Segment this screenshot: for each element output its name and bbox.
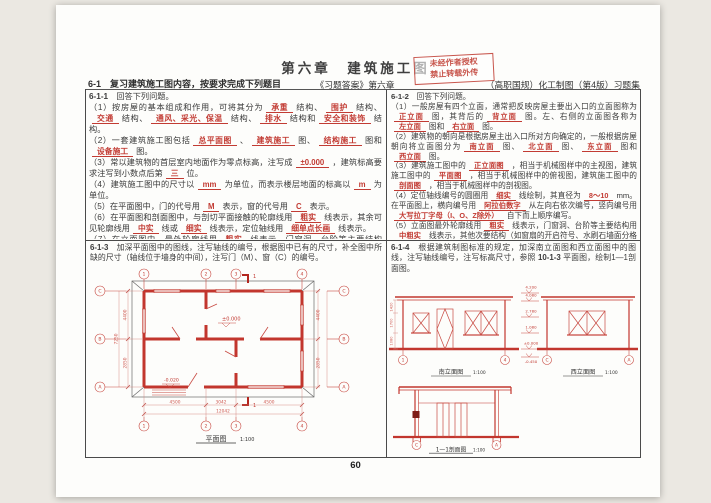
section-scale: 1:100	[473, 447, 485, 452]
question-paragraph: （2）一套建筑施工图包括总平面图、建筑施工图、结构施工图和设备施工图。	[89, 136, 382, 158]
axis-label: A	[342, 384, 346, 390]
axis-label: 1	[143, 423, 146, 429]
section-mark-bottom: 1	[253, 403, 256, 409]
plan-level-zero: ±0.000	[222, 316, 241, 322]
west-elevation-scale: 1:100	[605, 370, 618, 376]
plan-dim: 4400	[316, 309, 322, 320]
question-paragraph: （4）定位轴线编号的圆圈用细实线绘制，其直径为8～10mm。在平面图上，横向编号…	[391, 191, 637, 221]
axis-label: 2	[205, 423, 208, 429]
level-mark: ±0.000	[523, 340, 538, 345]
frame-left-border	[85, 89, 86, 240]
plan-dim: 4400	[123, 309, 129, 320]
floor-plan-drawing: 1 1 ±0.000 -0.020	[88, 265, 384, 447]
axis-label: 1	[143, 271, 146, 277]
axis-label: C	[545, 357, 548, 363]
section-title: 1—1剖面图	[435, 445, 466, 453]
page-number: 60	[0, 460, 711, 471]
question-paragraph: （1）按房屋的基本组成和作用，可将其分为承重结构、围护结构、交通结构、通风、采光…	[89, 103, 382, 136]
question-paragraph: （6）在平面图和剖面图中，与剖切平面接触的轮廓线用粗实线表示，其余可见轮廓线用中…	[89, 213, 382, 235]
level-mark: 4.080	[525, 292, 537, 297]
axis-label: C	[342, 288, 345, 294]
question-paragraph: （5）立面图最外轮廓线用粗实线表示，门窗洞、台阶等主要结构用中粗实线表示，其他次…	[391, 221, 637, 239]
south-elevation-scale: 1:100	[473, 370, 486, 376]
height-dim: 1080	[389, 336, 393, 346]
question-paragraph: （5）在平面图中，门的代号用M表示，窗的代号用C表示。	[89, 202, 382, 213]
axis-label: 2	[205, 271, 208, 277]
question-paragraph: （7）在立面图中，最外轮廓线用粗实线表示，门窗洞、台阶等主要结构中粗实线表示，其…	[89, 235, 382, 239]
axis-label: 3	[235, 271, 238, 277]
question-paragraph: （1）一般房屋有四个立面，通常把反映房屋主要出入口的立面图称为正立面图，其背后的…	[391, 102, 637, 132]
question-paragraph: （3）常以建筑物的首层室内地面作为零点标高，注写成±0.000，建筑标高要求注写…	[89, 158, 382, 180]
question-6-1-1: 6-1-1 回答下列问题。 （1）按房屋的基本组成和作用，可将其分为承重结构、围…	[89, 92, 382, 239]
axis-label: 3	[235, 423, 238, 429]
plan-level-porch: -0.020	[164, 377, 179, 383]
scanned-textbook-page: 第六章 建筑施工图 未经作者授权 禁止转载外传 6-1 复习建筑施工图内容，按要…	[0, 0, 711, 503]
plan-dim: 4500	[264, 399, 275, 405]
axis-label: B	[342, 336, 345, 342]
plan-dim: 2850	[316, 357, 322, 368]
axis-label: A	[627, 357, 630, 363]
frame-right-border	[640, 89, 641, 240]
exercise-box-6-1-4: 6-1-4 根据建筑制图标准的规定，加深南立面图和西立面图中的图线，注写轴线编号…	[386, 240, 641, 458]
axis-label: A	[98, 384, 102, 390]
level-mark: 1.080	[525, 324, 537, 329]
level-mark: -0.450	[524, 359, 537, 364]
question-paragraph: （2）建筑物的朝向是根据房屋主出入口所对方向确定的，一般根据房屋朝向将立面图分为…	[391, 132, 637, 162]
plan-dim: 2850	[123, 357, 129, 368]
elevation-section-drawing: 1420 1700 1080 1 4 南立面图 1:100	[389, 275, 639, 455]
task-6-1-4: 6-1-4 根据建筑制图标准的规定，加深南立面图和西立面图中的图线，注写轴线编号…	[387, 241, 640, 274]
chapter-title: 第六章 建筑施工图	[0, 57, 711, 77]
axis-label: A	[494, 442, 497, 448]
question-intro: 6-1-1 回答下列问题。	[89, 92, 382, 103]
height-dim: 1700	[389, 318, 393, 328]
plan-scale-label: 1:100	[240, 437, 254, 443]
question-paragraph: （3）建筑施工图中的正立面图，相当于机械图样中的主视图，建筑施工图中的平面图，相…	[391, 161, 637, 191]
exercise-box-6-1-3: 6-1-3 加深平面图中的图线，注写轴线的编号，根据图中已有的尺寸，补全图中所缺…	[85, 240, 387, 458]
plan-dim-total: 12042	[216, 408, 230, 414]
axis-label: C	[414, 442, 417, 448]
axis-label: C	[98, 288, 101, 294]
level-mark: 2.780	[525, 308, 537, 313]
section-mark-top: 1	[253, 274, 256, 280]
task-6-1-3: 6-1-3 加深平面图中的图线，注写轴线的编号，根据图中已有的尺寸，补全图中所缺…	[86, 241, 386, 264]
axis-label: B	[98, 336, 101, 342]
beam-section	[412, 411, 419, 418]
south-elevation-title: 南立面图	[438, 368, 463, 376]
west-elevation-title: 西立面图	[570, 368, 595, 376]
header-rule	[85, 89, 641, 90]
axis-label: 1	[401, 357, 404, 363]
axis-label: 4	[503, 357, 506, 363]
question-6-1-2: 6-1-2 回答下列问题。 （1）一般房屋有四个立面，通常把反映房屋主要出入口的…	[391, 92, 637, 239]
plan-dim: 3042	[216, 399, 227, 405]
question-paragraph: （4）建筑施工图中的尺寸以mm为单位，而表示楼层地面的标高以m为单位。	[89, 180, 382, 202]
height-dim: 1420	[389, 302, 393, 312]
level-mark: 4.200	[525, 284, 537, 289]
column-divider	[386, 89, 387, 240]
plan-dim: 4500	[170, 399, 181, 405]
question-intro: 6-1-2 回答下列问题。	[391, 92, 637, 102]
axis-label: 4	[301, 271, 304, 277]
plan-title-label: 平面图	[206, 435, 227, 443]
axis-label: 4	[301, 423, 304, 429]
